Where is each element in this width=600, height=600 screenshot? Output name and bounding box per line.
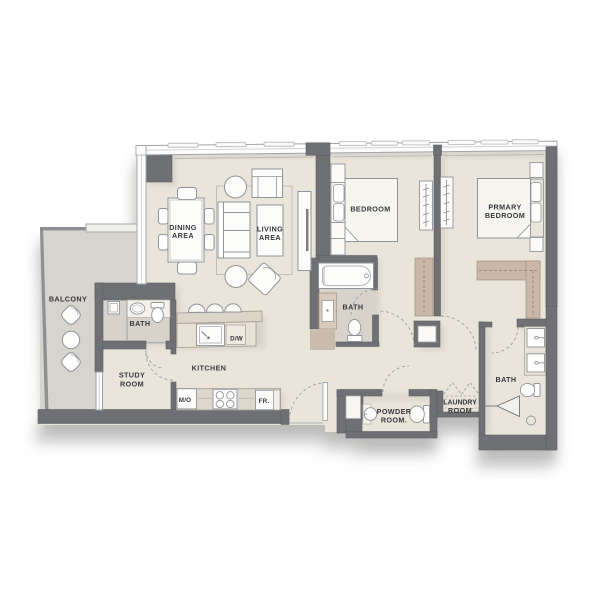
svg-text:FR.: FR. bbox=[259, 398, 270, 405]
svg-text:BEDROOM: BEDROOM bbox=[485, 211, 525, 220]
svg-text:BEDROOM: BEDROOM bbox=[350, 205, 390, 214]
svg-text:BATH: BATH bbox=[342, 303, 363, 312]
svg-text:BATH: BATH bbox=[495, 375, 516, 384]
svg-text:ROOM: ROOM bbox=[120, 380, 144, 389]
svg-text:ROOM.: ROOM. bbox=[381, 415, 407, 424]
svg-text:ROOM: ROOM bbox=[448, 406, 472, 415]
svg-text:BALCONY: BALCONY bbox=[49, 295, 87, 304]
svg-text:AREA: AREA bbox=[259, 233, 281, 242]
svg-text:AREA: AREA bbox=[172, 231, 194, 240]
svg-text:M/O: M/O bbox=[179, 397, 192, 404]
svg-text:BATH: BATH bbox=[129, 319, 150, 328]
svg-text:KITCHEN: KITCHEN bbox=[192, 364, 227, 373]
svg-text:STUDY: STUDY bbox=[119, 371, 145, 380]
svg-text:D/W: D/W bbox=[230, 336, 243, 343]
